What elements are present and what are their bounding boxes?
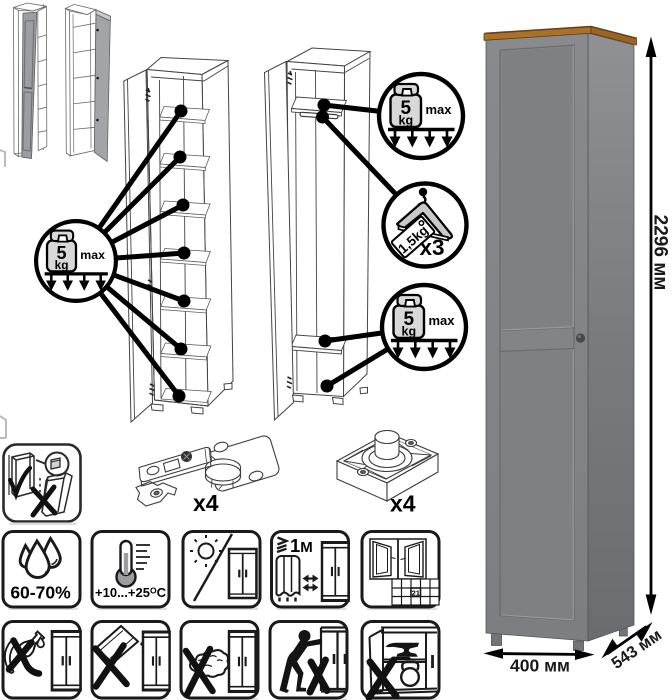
- svg-text:+10...+25OC: +10...+25OC: [95, 585, 167, 600]
- svg-text:60-70%: 60-70%: [10, 583, 71, 603]
- svg-text:400 мм: 400 мм: [510, 656, 570, 676]
- svg-text:x4: x4: [193, 490, 219, 516]
- svg-text:x4: x4: [390, 491, 416, 517]
- svg-text:21: 21: [412, 589, 420, 598]
- svg-text:1M: 1M: [290, 535, 313, 556]
- svg-text:x3: x3: [420, 235, 445, 260]
- svg-text:2296 мм: 2296 мм: [650, 215, 671, 291]
